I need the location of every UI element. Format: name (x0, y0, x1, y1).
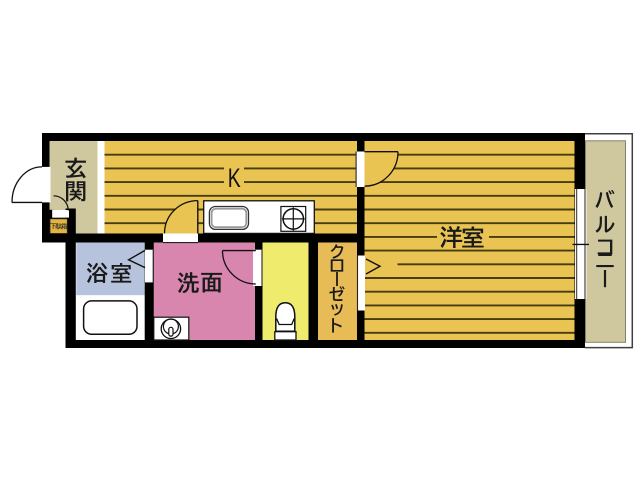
svg-text:K: K (228, 163, 241, 193)
